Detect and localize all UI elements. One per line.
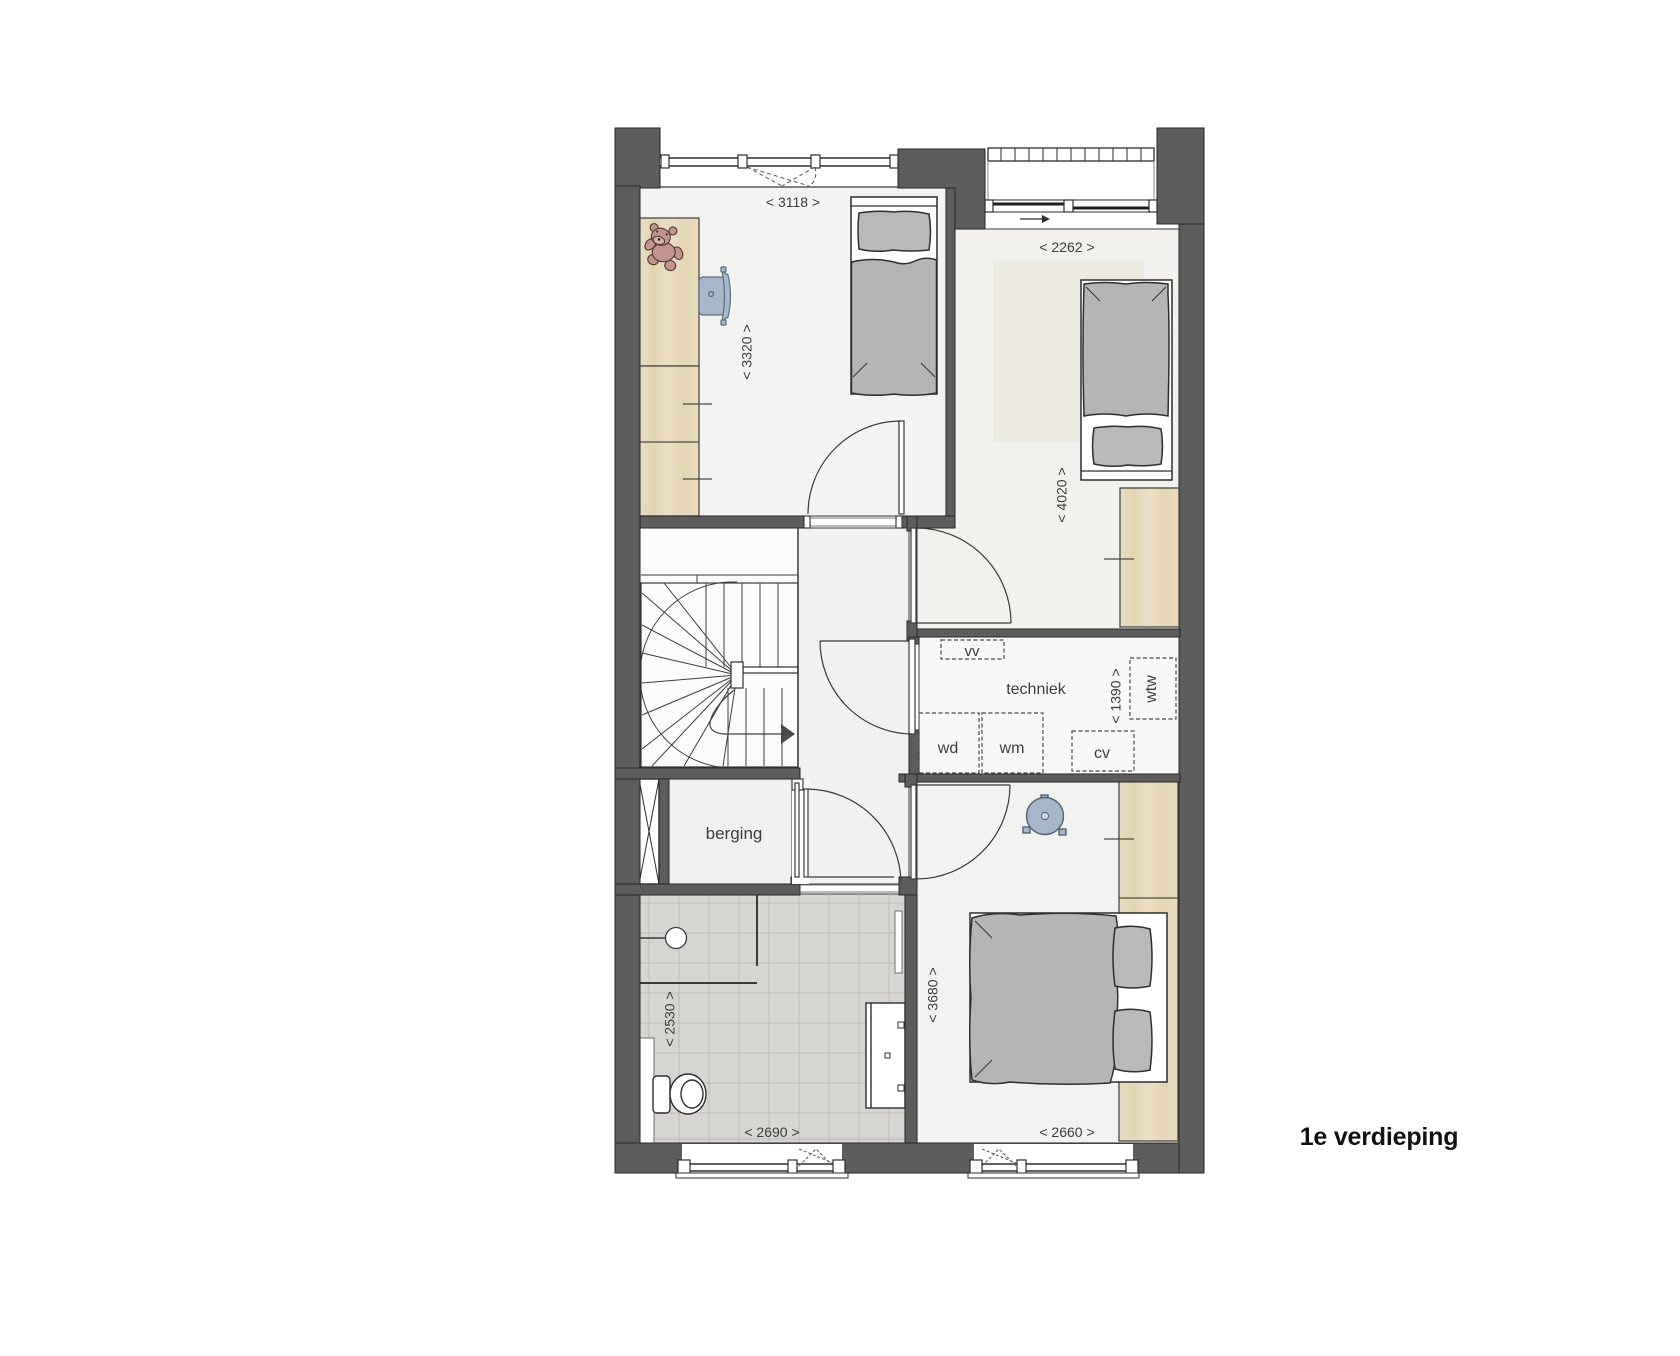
svg-text:< 2530 >: < 2530 > (662, 991, 678, 1046)
svg-text:< 3680 >: < 3680 > (925, 967, 941, 1022)
svg-text:techniek: techniek (1006, 681, 1067, 698)
svg-text:vv: vv (965, 643, 981, 660)
svg-text:< 2690 >: < 2690 > (744, 1124, 799, 1140)
svg-text:< 4020 >: < 4020 > (1054, 467, 1070, 522)
svg-text:< 3320 >: < 3320 > (739, 324, 755, 379)
svg-text:wd: wd (937, 740, 958, 757)
svg-text:< 3118 >: < 3118 > (766, 194, 820, 210)
svg-text:cv: cv (1094, 745, 1110, 762)
svg-text:wtw: wtw (1143, 675, 1160, 704)
svg-text:< 1390 >: < 1390 > (1108, 668, 1124, 723)
svg-text:1e verdieping: 1e verdieping (1300, 1123, 1459, 1151)
svg-text:wm: wm (999, 740, 1025, 757)
svg-text:< 2660 >: < 2660 > (1039, 1124, 1094, 1140)
svg-text:berging: berging (706, 824, 763, 843)
svg-text:< 2262 >: < 2262 > (1039, 239, 1094, 255)
